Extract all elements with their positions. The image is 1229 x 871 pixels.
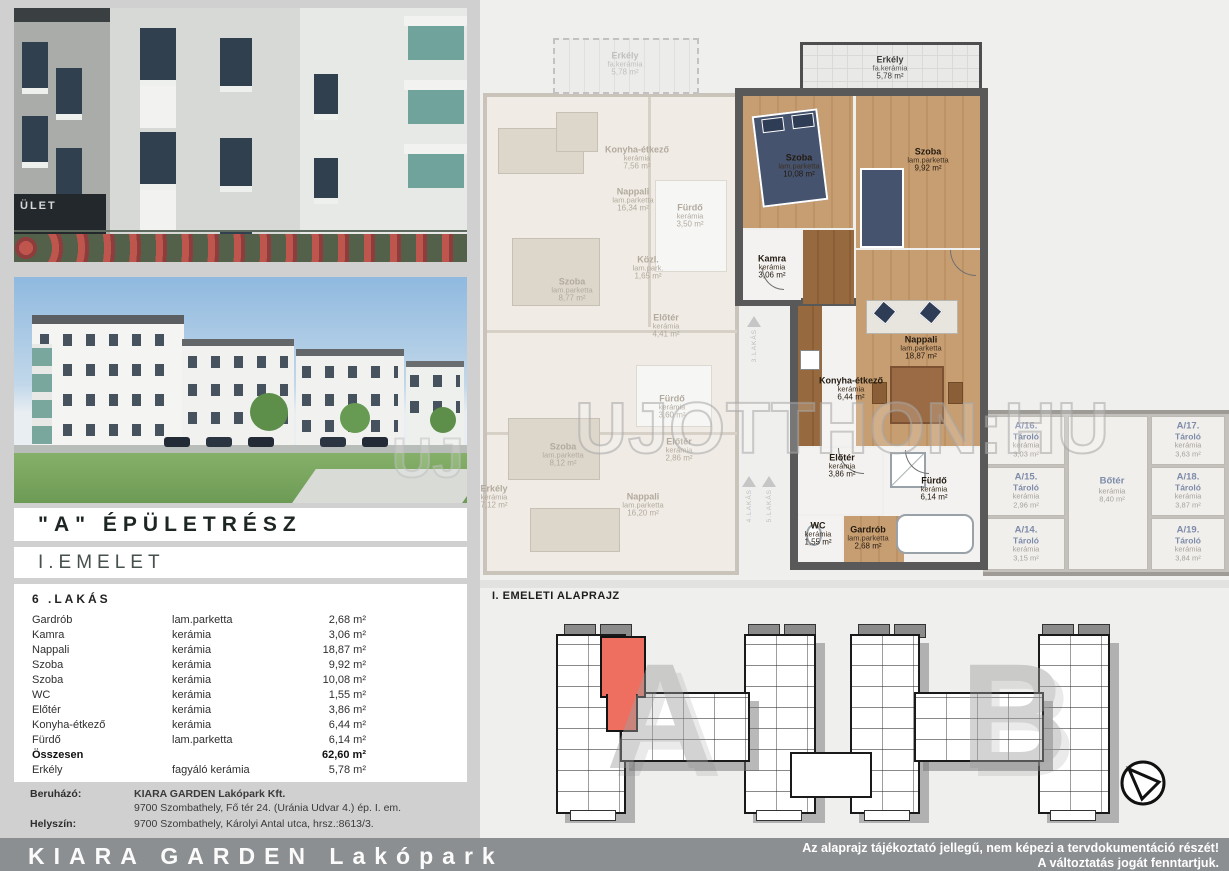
label-a14: A/14.Tárolókerámia3,15 m² (1013, 526, 1040, 563)
window (56, 68, 82, 120)
bathtub (896, 514, 974, 554)
label-f-nappali-2: Nappalilam.parketta16,20 m² (622, 491, 663, 518)
table-row: Szobakerámia9,92 m² (14, 659, 467, 674)
label-a18: A/18.Tárolókerámia3,87 m² (1175, 473, 1202, 510)
window (140, 28, 176, 86)
disclaimer-line-2: A változtatás jogát fenntartjuk. (802, 856, 1219, 871)
balcony-slab (404, 144, 467, 154)
label-a19: A/19.Tárolókerámia3,84 m² (1175, 526, 1202, 563)
label-f-nappali: Nappalilam.parketta16,34 m² (612, 186, 653, 213)
balcony-slab (404, 80, 467, 90)
label-f-eloter: Előtérkerámia4,41 m² (652, 312, 679, 339)
car (164, 437, 190, 447)
table-balcony-row: Erkélyfagyáló kerámia5,78 m² (14, 764, 467, 779)
table-row: Szobakerámia10,08 m² (14, 674, 467, 689)
corridor-label: 4.LAKÁS (746, 489, 753, 522)
label-boter: Bőtérkerámia8,40 m² (1099, 476, 1126, 503)
section-divider (480, 580, 1229, 588)
highlighted-unit (600, 636, 646, 698)
label-f-kozl: Közl.lam.park.1,65 m² (633, 254, 664, 281)
label-szoba-2: Szobalam.parketta9,92 m² (907, 146, 948, 173)
window-row (40, 364, 176, 376)
bed-2 (860, 168, 904, 248)
window (140, 132, 176, 190)
table-row: WCkerámia1,55 m² (14, 689, 467, 704)
faded-sofa-2 (530, 508, 620, 552)
brochure-page: { "left": { "photo1": {"sign": "ÜLET"}, … (0, 0, 1229, 871)
arrow-up-icon (762, 476, 776, 487)
label-f-szoba-2: Szobalam.parketta8,12 m² (542, 441, 583, 468)
disclaimer-line-1: Az alaprajz tájékoztató jellegű, nem kép… (802, 841, 1219, 856)
balcony-column (32, 344, 52, 444)
window (22, 42, 48, 94)
highlighted-unit-lower (606, 694, 638, 732)
label-f-furdo: Fürdőkerámia3,50 m² (676, 202, 703, 229)
red-bushes (14, 234, 467, 262)
developer-address: 9700 Szombathely, Fő tér 24. (Uránia Udv… (134, 802, 401, 814)
car (362, 437, 388, 447)
entrance-stub (1050, 810, 1096, 821)
developer-name: KIARA GARDEN Lakópark Kft. (134, 788, 285, 800)
window-row (40, 424, 176, 436)
label-wc: WCkerámia1,55 m² (804, 520, 831, 547)
corridor-marker-3: 3.LAKÁS (747, 316, 761, 362)
wing-connector (620, 692, 750, 762)
window-row (302, 366, 398, 378)
balcony-glass (408, 90, 464, 124)
floor-title-strip: I.EMELET (14, 547, 467, 578)
table-total-row: Összesen62,60 m² (14, 749, 467, 764)
storefront-sign: ÜLET (20, 200, 57, 212)
label-balcony-faded: Erkélyfa.kerámia5,78 m² (607, 50, 642, 77)
wing-connector (914, 692, 1044, 762)
site-label: Helyszín: (30, 818, 76, 830)
corridor-marker-5: 5.LAKÁS (762, 476, 776, 522)
window (220, 138, 252, 192)
stove (800, 350, 820, 370)
apartment-number-title: 6 .LAKÁS (32, 592, 111, 606)
label-a16: A/16.Tárolókerámia3,03 m² (1013, 422, 1040, 459)
window (220, 38, 252, 92)
tree (340, 403, 370, 433)
overview-title: I. EMELETI ALAPRAJZ (492, 590, 620, 602)
label-furdo: Fürdőkerámia6,14 m² (920, 475, 947, 502)
entrance-stub (570, 810, 616, 821)
balcony-glass (408, 26, 464, 60)
label-gardrob: Gardróblam.parketta2,68 m² (847, 524, 888, 551)
overview-building-b (850, 622, 1106, 822)
arrow-up-icon (747, 316, 761, 327)
developer-label: Beruházó: (30, 788, 81, 800)
white-panel (140, 86, 176, 128)
label-f-konyha: Konyha-étkezőkerámia7,56 m² (605, 144, 669, 171)
tree (250, 393, 288, 431)
overview-building-a (556, 622, 812, 822)
window (22, 116, 48, 168)
faded-table (556, 112, 598, 152)
table-row: Előtérkerámia3,86 m² (14, 704, 467, 719)
label-f-eloter-2: Előtérkerámia2,86 m² (665, 436, 692, 463)
disclaimer: Az alaprajz tájékoztató jellegű, nem kép… (802, 841, 1219, 870)
window (56, 148, 82, 200)
chair (948, 382, 963, 404)
label-kamra: Kamrakerámia3,06 m² (758, 253, 786, 280)
window (314, 158, 338, 204)
corridor-label: 5.LAKÁS (766, 489, 773, 522)
buildings-connector (790, 752, 872, 798)
label-eloter: Előtérkerámia3,86 m² (828, 452, 855, 479)
window-row (410, 375, 460, 387)
north-compass-icon (1116, 756, 1170, 810)
car (248, 437, 274, 447)
apartment-table-card: 6 .LAKÁS Gardróblam.parketta2,68 m² Kamr… (14, 584, 467, 782)
white-panel (140, 190, 176, 232)
balcony-glass (408, 154, 464, 188)
fence (14, 230, 467, 232)
label-f-szoba: Szobalam.parketta8,77 m² (551, 276, 592, 303)
car (320, 437, 346, 447)
block-3 (296, 349, 404, 449)
table-row: Fürdőlam.parketta6,14 m² (14, 734, 467, 749)
balcony-slab (404, 16, 467, 26)
photo-watermark: UJ (392, 425, 464, 490)
brand-title: KIARA GARDEN Lakópark (28, 843, 504, 870)
window-row (40, 334, 176, 346)
label-a15: A/15.Tárolókerámia2,96 m² (1013, 473, 1040, 510)
label-szoba-1: Szobalam.parketta10,08 m² (778, 152, 819, 179)
entrance-stub (864, 810, 910, 821)
entrance-stub (756, 810, 802, 821)
label-f-furdo-2: Fürdőkerámia3,60 m² (658, 393, 685, 420)
footer-bar: KIARA GARDEN Lakópark Az alaprajz tájéko… (0, 838, 1229, 871)
table-row: Konyha-étkezőkerámia6,44 m² (14, 719, 467, 734)
site-address: 9700 Szombathely, Károlyi Antal utca, hr… (134, 818, 374, 830)
facade-mid (110, 8, 300, 262)
label-nappali: Nappalilam.parketta18,87 m² (900, 334, 941, 361)
developer-info: Beruházó: KIARA GARDEN Lakópark Kft. 970… (14, 786, 467, 834)
label-konyha: Konyha-étkezőkerámia6,44 m² (819, 375, 883, 402)
table-row: Kamrakerámia3,06 m² (14, 629, 467, 644)
building-render-photo-1: ÜLET (14, 8, 467, 262)
wing-slab (1038, 634, 1110, 814)
building-render-photo-2: UJ (14, 277, 467, 503)
car (206, 437, 232, 447)
block-1 (32, 315, 184, 453)
arrow-up-icon (742, 476, 756, 487)
label-balcony-main: Erkélyfa.kerámia5,78 m² (872, 54, 907, 81)
pillow (791, 113, 815, 130)
faded-wall (487, 330, 737, 333)
building-title-strip: "A" ÉPÜLETRÉSZ (14, 508, 467, 541)
dining-table (890, 366, 944, 424)
corridor-label: 3.LAKÁS (751, 329, 758, 362)
table-row: Nappalikerámia18,87 m² (14, 644, 467, 659)
label-a17: A/17.Tárolókerámia3,63 m² (1175, 422, 1202, 459)
pillow (761, 117, 785, 134)
corridor-marker-4: 4.LAKÁS (742, 476, 756, 522)
building-title: "A" ÉPÜLETRÉSZ (14, 513, 302, 537)
window (314, 74, 338, 120)
window-row (188, 356, 288, 368)
window-row (40, 394, 176, 406)
table-row: Gardróblam.parketta2,68 m² (14, 614, 467, 629)
room-hall (803, 230, 854, 304)
floor-title: I.EMELET (14, 552, 165, 574)
label-f-erkely: Erkélykerámia7,12 m² (480, 483, 507, 510)
